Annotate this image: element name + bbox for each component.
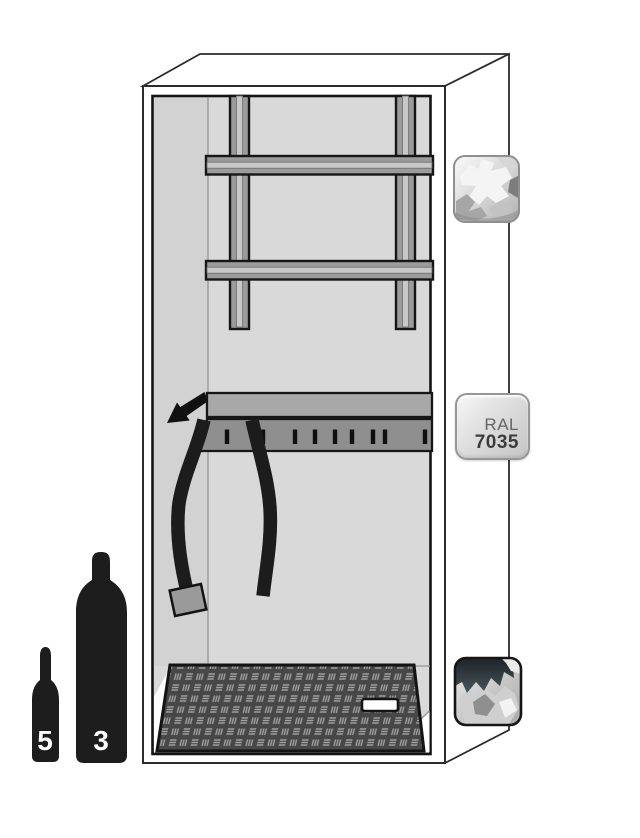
shelf-top-bar <box>207 393 432 417</box>
strap-buckle <box>170 584 207 616</box>
product-illustration: RAL 7035 5 3 <box>0 0 640 838</box>
cabinet-illustration <box>0 0 640 838</box>
cylinder-count-large: 3 <box>85 726 117 756</box>
horizontal-rail-top <box>206 156 433 175</box>
ral-standard-label: RAL <box>475 417 519 433</box>
steel-texture-swatch-icon[interactable] <box>454 156 519 222</box>
horizontal-rail-bottom <box>206 261 433 280</box>
ral-7035-color-badge[interactable]: RAL 7035 <box>455 393 530 460</box>
ral-color-code: 7035 <box>475 433 519 452</box>
ral-badge-text: RAL 7035 <box>475 417 519 452</box>
ramp-handle-slot <box>362 699 398 711</box>
strap-shelf <box>200 393 432 451</box>
floor-ramp <box>157 665 424 751</box>
cylinder-count-small: 5 <box>29 726 61 756</box>
vertical-rail-left <box>230 96 249 329</box>
vertical-rail-right <box>396 96 415 329</box>
dark-steel-texture-swatch-icon[interactable] <box>455 658 521 725</box>
